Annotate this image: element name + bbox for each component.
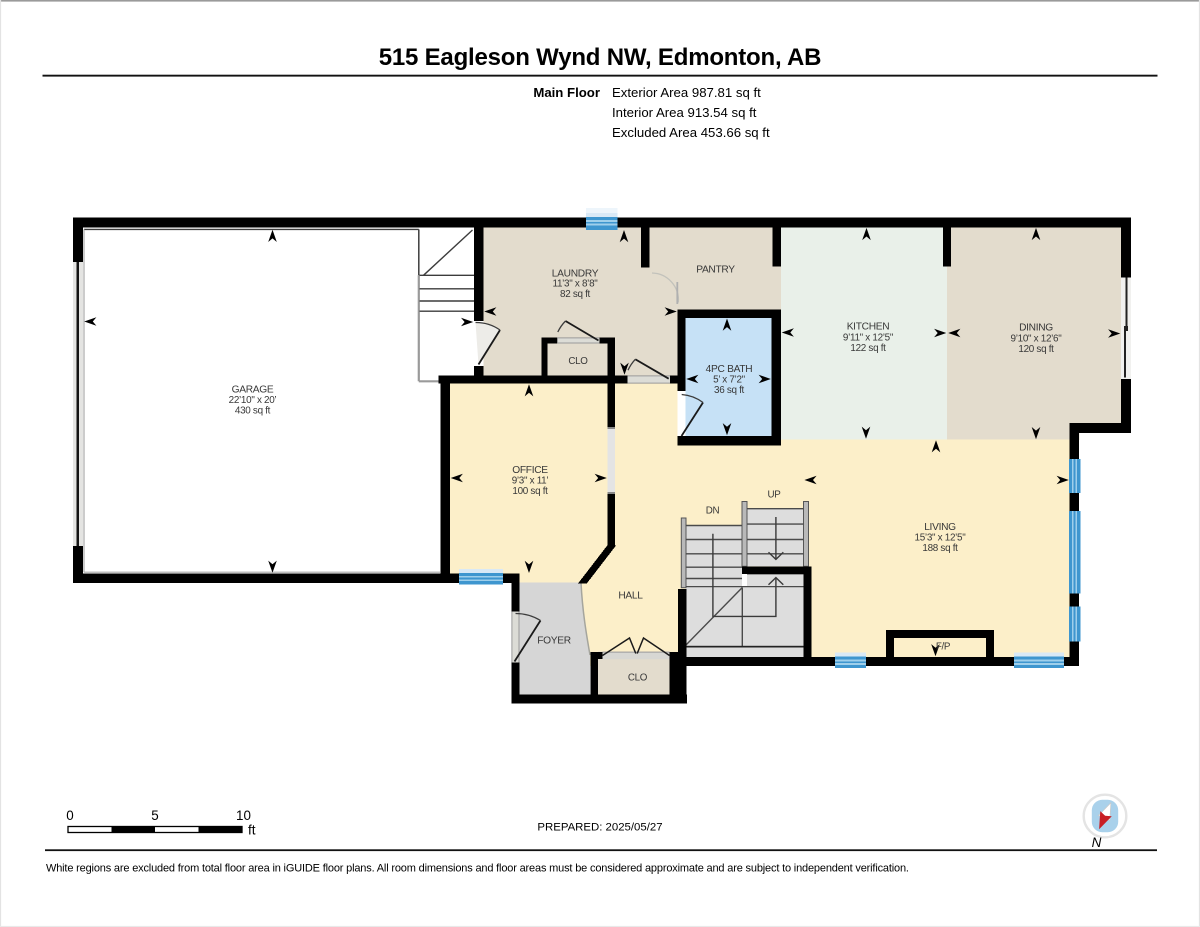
svg-text:FOYER: FOYER <box>537 636 571 647</box>
svg-text:Excluded Area 453.66 sq ft: Excluded Area 453.66 sq ft <box>612 125 770 140</box>
svg-text:100 sq ft: 100 sq ft <box>512 486 548 497</box>
svg-text:DINING: DINING <box>1019 323 1053 334</box>
svg-text:N: N <box>1092 835 1102 850</box>
svg-text:122 sq ft: 122 sq ft <box>850 343 886 354</box>
svg-text:Interior Area 913.54 sq ft: Interior Area 913.54 sq ft <box>612 105 757 120</box>
svg-text:9’10" x 12’6": 9’10" x 12’6" <box>1011 333 1063 344</box>
svg-text:10: 10 <box>236 808 251 823</box>
svg-text:CLO: CLO <box>568 356 588 367</box>
svg-text:DN: DN <box>706 506 720 517</box>
svg-text:PREPARED: 2025/05/27: PREPARED: 2025/05/27 <box>537 822 662 834</box>
svg-text:F/P: F/P <box>936 642 951 653</box>
svg-text:36 sq ft: 36 sq ft <box>714 385 745 396</box>
svg-text:120 sq ft: 120 sq ft <box>1018 344 1054 355</box>
svg-text:LAUNDRY: LAUNDRY <box>552 268 599 279</box>
svg-text:5: 5 <box>151 808 158 823</box>
svg-text:15’3" x 12’5": 15’3" x 12’5" <box>915 532 967 543</box>
svg-text:188 sq ft: 188 sq ft <box>922 543 958 554</box>
svg-text:HALL: HALL <box>618 591 643 602</box>
svg-text:White regions are excluded fro: White regions are excluded from total fl… <box>46 863 909 875</box>
svg-text:22’10" x 20’: 22’10" x 20’ <box>229 395 277 406</box>
svg-text:9’11" x 12’5": 9’11" x 12’5" <box>843 332 894 343</box>
svg-text:430 sq ft: 430 sq ft <box>235 406 271 417</box>
svg-text:9’3" x 11’: 9’3" x 11’ <box>512 476 549 487</box>
svg-text:Main Floor: Main Floor <box>533 85 600 100</box>
svg-text:11’3" x 8’8": 11’3" x 8’8" <box>553 279 599 290</box>
svg-text:CLO: CLO <box>628 673 648 684</box>
svg-text:4PC BATH: 4PC BATH <box>706 364 753 375</box>
svg-text:LIVING: LIVING <box>924 522 956 533</box>
svg-text:0: 0 <box>66 808 73 823</box>
svg-text:OFFICE: OFFICE <box>512 465 548 476</box>
svg-text:Exterior Area 987.81 sq ft: Exterior Area 987.81 sq ft <box>612 85 761 100</box>
svg-text:82 sq ft: 82 sq ft <box>560 289 591 300</box>
svg-text:UP: UP <box>767 490 781 501</box>
svg-text:KITCHEN: KITCHEN <box>847 322 890 333</box>
svg-text:GARAGE: GARAGE <box>232 384 274 395</box>
svg-text:PANTRY: PANTRY <box>696 265 735 276</box>
svg-text:515 Eagleson Wynd NW, Edmonton: 515 Eagleson Wynd NW, Edmonton, AB <box>379 44 822 71</box>
svg-text:ft: ft <box>248 823 256 838</box>
